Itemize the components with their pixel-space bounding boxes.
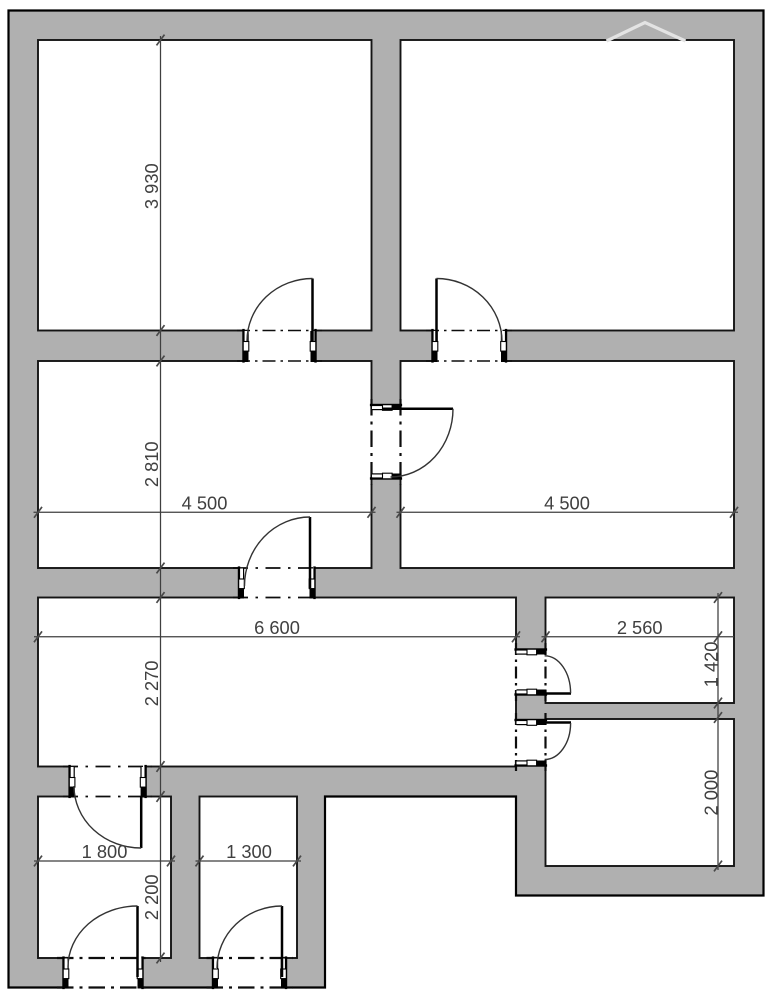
svg-text:1 420: 1 420 — [700, 642, 721, 688]
svg-text:4 500: 4 500 — [182, 492, 228, 513]
svg-text:2 810: 2 810 — [141, 441, 162, 487]
svg-text:4 500: 4 500 — [544, 492, 590, 513]
svg-text:6 600: 6 600 — [254, 617, 300, 638]
svg-text:3 930: 3 930 — [141, 163, 162, 209]
svg-text:2 000: 2 000 — [700, 770, 721, 816]
svg-text:2 270: 2 270 — [141, 661, 162, 707]
svg-text:2 560: 2 560 — [617, 617, 663, 638]
svg-text:1 800: 1 800 — [82, 841, 128, 862]
svg-text:2 200: 2 200 — [141, 874, 162, 920]
svg-text:1 300: 1 300 — [226, 841, 272, 862]
